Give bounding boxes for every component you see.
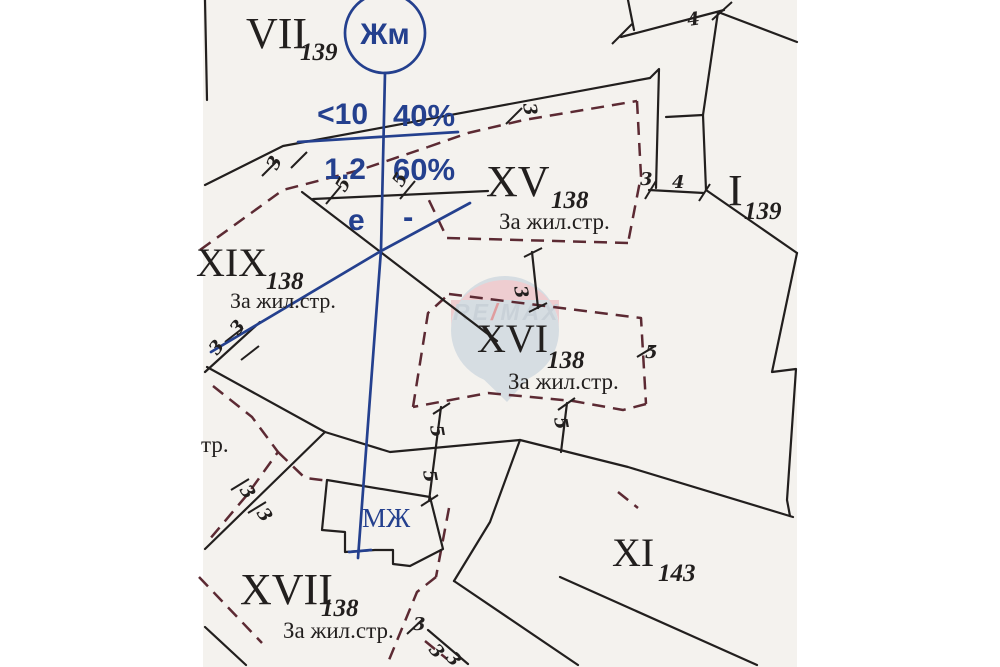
parcel-vii-numeral: VII bbox=[246, 9, 307, 58]
parcel-xv-numeral: XV bbox=[486, 157, 550, 206]
parcel-xv-use: За жил.стр. bbox=[499, 209, 610, 234]
street-text-fragment: тр. bbox=[201, 432, 229, 457]
parcel-vii-number: 139 bbox=[300, 39, 338, 66]
parcel-i-numeral: I bbox=[728, 166, 743, 215]
parcel-xvi-use: За жил.стр. bbox=[508, 369, 619, 394]
dimension-value: 5 bbox=[645, 342, 658, 363]
scanned-cadastral-map: RE/MAX bbox=[0, 0, 1000, 667]
parcel-xi-number: 143 bbox=[658, 560, 696, 587]
zoning-dash-label: - bbox=[403, 199, 413, 234]
dimension-value: 3 bbox=[413, 614, 426, 635]
parcel-xvi-numeral: XVI bbox=[477, 316, 548, 361]
parcel-xix-numeral: XIX bbox=[196, 240, 267, 285]
parcel-xvii-numeral: XVII bbox=[240, 565, 333, 614]
building-type-label: МЖ bbox=[362, 503, 411, 533]
zoning-height-value: <10 bbox=[317, 98, 368, 131]
zoning-circle-label: Жм bbox=[359, 18, 409, 51]
dimension-value: 4 bbox=[672, 172, 685, 193]
parcel-i-number: 139 bbox=[744, 198, 782, 225]
parcel-xi-numeral: XI bbox=[612, 530, 654, 575]
zoning-e-label: е bbox=[348, 204, 365, 237]
cadastral-map-canvas: RE/MAX bbox=[0, 0, 1000, 667]
parcel-xix-use: За жил.стр. bbox=[230, 288, 336, 313]
parcel-xvii-use: За жил.стр. bbox=[283, 618, 394, 643]
zoning-density-value: 40% bbox=[393, 98, 455, 133]
dimension-value: 3 bbox=[640, 169, 653, 190]
